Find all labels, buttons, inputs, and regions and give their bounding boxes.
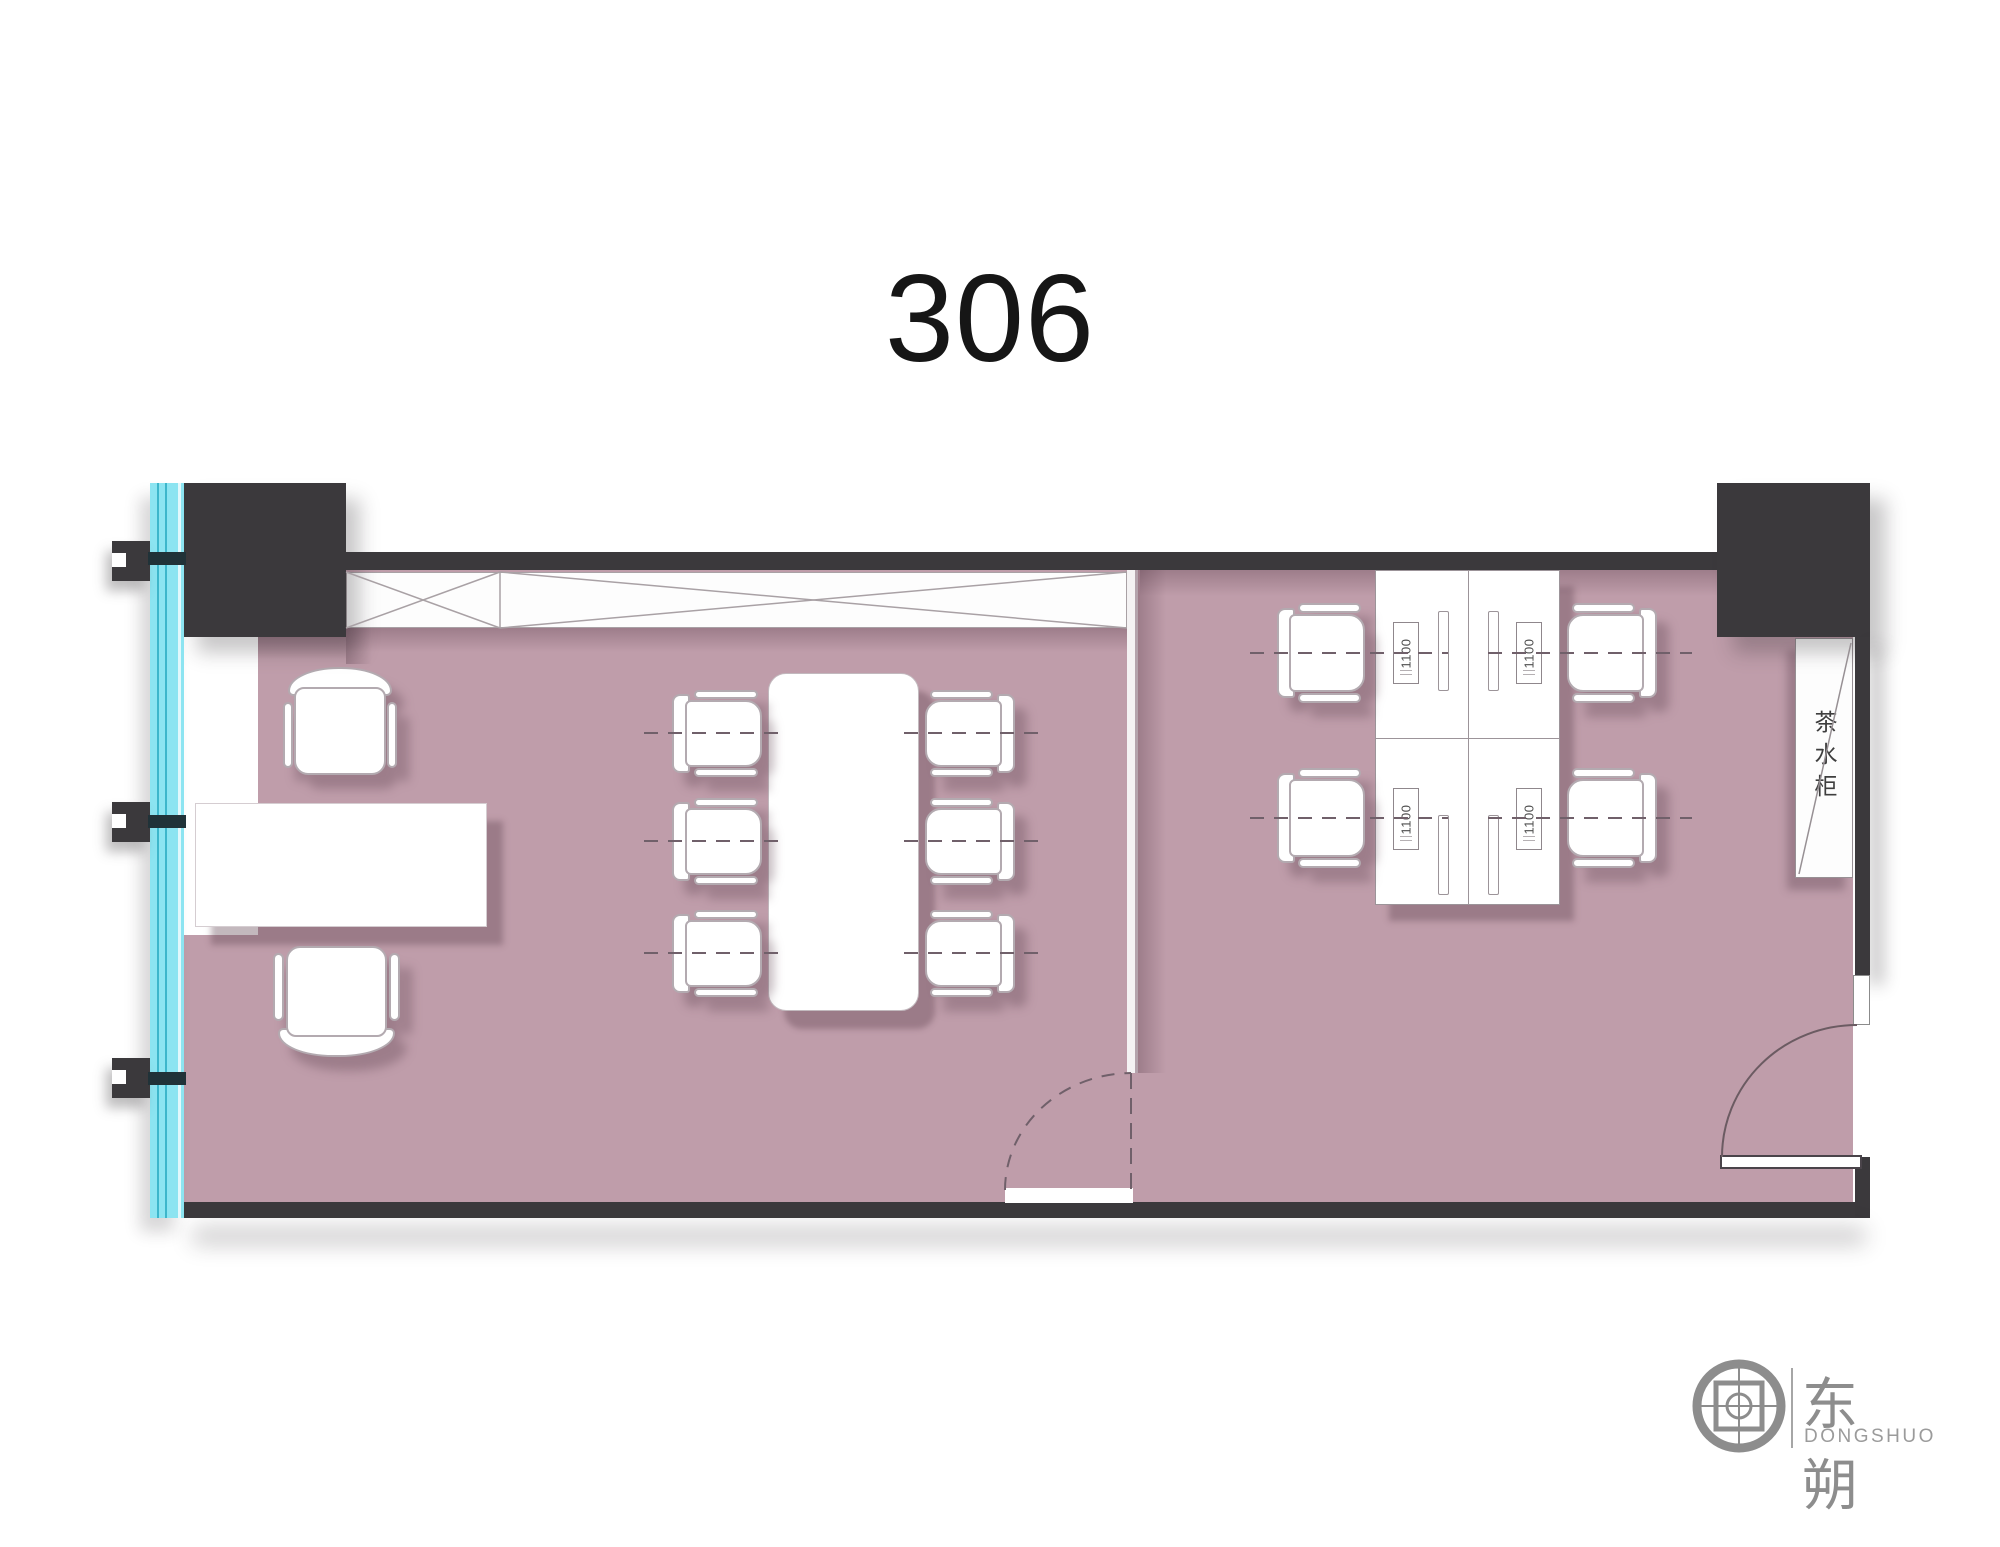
chair-seat [925,808,1002,876]
window-fin-band [148,815,186,828]
desk-size-label: 1100 [1393,622,1419,684]
fin-notch [112,814,126,828]
chair-armrest [1298,693,1361,703]
chair-armrest [694,798,758,807]
label-tick [1523,836,1535,841]
fin-notch [112,553,126,567]
window-fin-band [148,552,186,565]
tea-cabinet: 茶水柜 [1795,638,1853,878]
chair-armrest [930,876,994,885]
right-door-jamb [1853,975,1870,1025]
workstation-desk-cluster [1375,570,1560,905]
chair-armrest [694,988,758,997]
chair-armrest [1298,768,1361,778]
monitor [1438,611,1449,691]
chair-seat [685,808,762,876]
chair-seat [1289,614,1365,692]
conference-chair [672,798,762,885]
chair-armrest [1572,693,1636,703]
monitor [1438,815,1449,895]
task-chair [1567,603,1657,703]
chair-armrest [694,768,758,777]
label-tick [1523,670,1535,675]
task-chair [1277,768,1365,868]
executive-desk [195,803,487,927]
conference-chair [672,690,762,777]
desk-size-label: 1100 [1516,622,1542,684]
wardrobe-strip [346,572,1127,628]
column-top-right [1717,483,1870,637]
chair-armrest [930,690,994,699]
conference-table [768,673,919,1011]
desk-size-label: 1100 [1516,788,1542,850]
brand-logo: 东朔 DONGSHUO [1690,1356,1920,1460]
right-wall [1855,637,1870,975]
floor-plan-page: 306 1100 1100 [0,0,2000,1547]
logo-name-en: DONGSHUO [1804,1426,1936,1448]
desk-size-label: 1100 [1393,788,1419,850]
monitor [1488,815,1499,895]
chair-seat [286,946,388,1036]
window-fin-band [148,1072,186,1085]
chair-armrest [930,910,994,919]
chair-armrest [1572,858,1636,868]
window-mullion-line [165,483,167,1218]
window-mullion-line [157,483,159,1218]
room-number-title: 306 [790,248,1190,390]
chair-seat [1567,779,1644,857]
top-wall [346,552,1717,570]
chair-seat [1567,614,1644,692]
chair-armrest [387,702,397,768]
desk-divider [1376,738,1559,740]
chair-seat [685,920,762,988]
chair-armrest [1572,603,1636,613]
chair-armrest [389,953,400,1021]
chair-armrest [1572,768,1636,778]
middle-door-opening [1005,1188,1133,1203]
chair-armrest [273,953,284,1021]
chair-armrest [930,768,994,777]
chair-armrest [283,702,293,768]
column-top-left [183,483,346,637]
tea-cabinet-label: 茶水柜 [1807,710,1841,806]
chair-armrest [694,690,758,699]
window-highlight [178,483,181,1218]
conference-chair [925,690,1015,777]
chair-armrest [694,876,758,885]
chair-seat [685,700,762,768]
partition-wall [1127,570,1138,1073]
chair-seat [294,687,385,775]
logo-divider [1791,1368,1793,1448]
fin-notch [112,1070,126,1084]
chair-seat [1289,779,1365,857]
executive-chair [283,667,397,777]
right-door-leaf [1720,1155,1862,1169]
label-tick [1400,670,1412,675]
window-fin [112,1058,150,1098]
bottom-wall [183,1202,1855,1218]
conference-chair [672,910,762,997]
window-curtain-wall [150,483,184,1218]
task-chair [1277,603,1365,703]
chair-seat [925,700,1002,768]
guest-chair [273,944,400,1057]
label-tick [1400,836,1412,841]
window-fin [112,541,150,581]
chair-armrest [694,910,758,919]
conference-chair [925,910,1015,997]
window-fin [112,802,150,842]
chair-armrest [1298,603,1361,613]
logo-mark-icon [1690,1356,1790,1456]
chair-seat [925,920,1002,988]
chair-armrest [930,988,994,997]
task-chair [1567,768,1657,868]
chair-armrest [1298,858,1361,868]
monitor [1488,611,1499,691]
conference-chair [925,798,1015,885]
chair-armrest [930,798,994,807]
